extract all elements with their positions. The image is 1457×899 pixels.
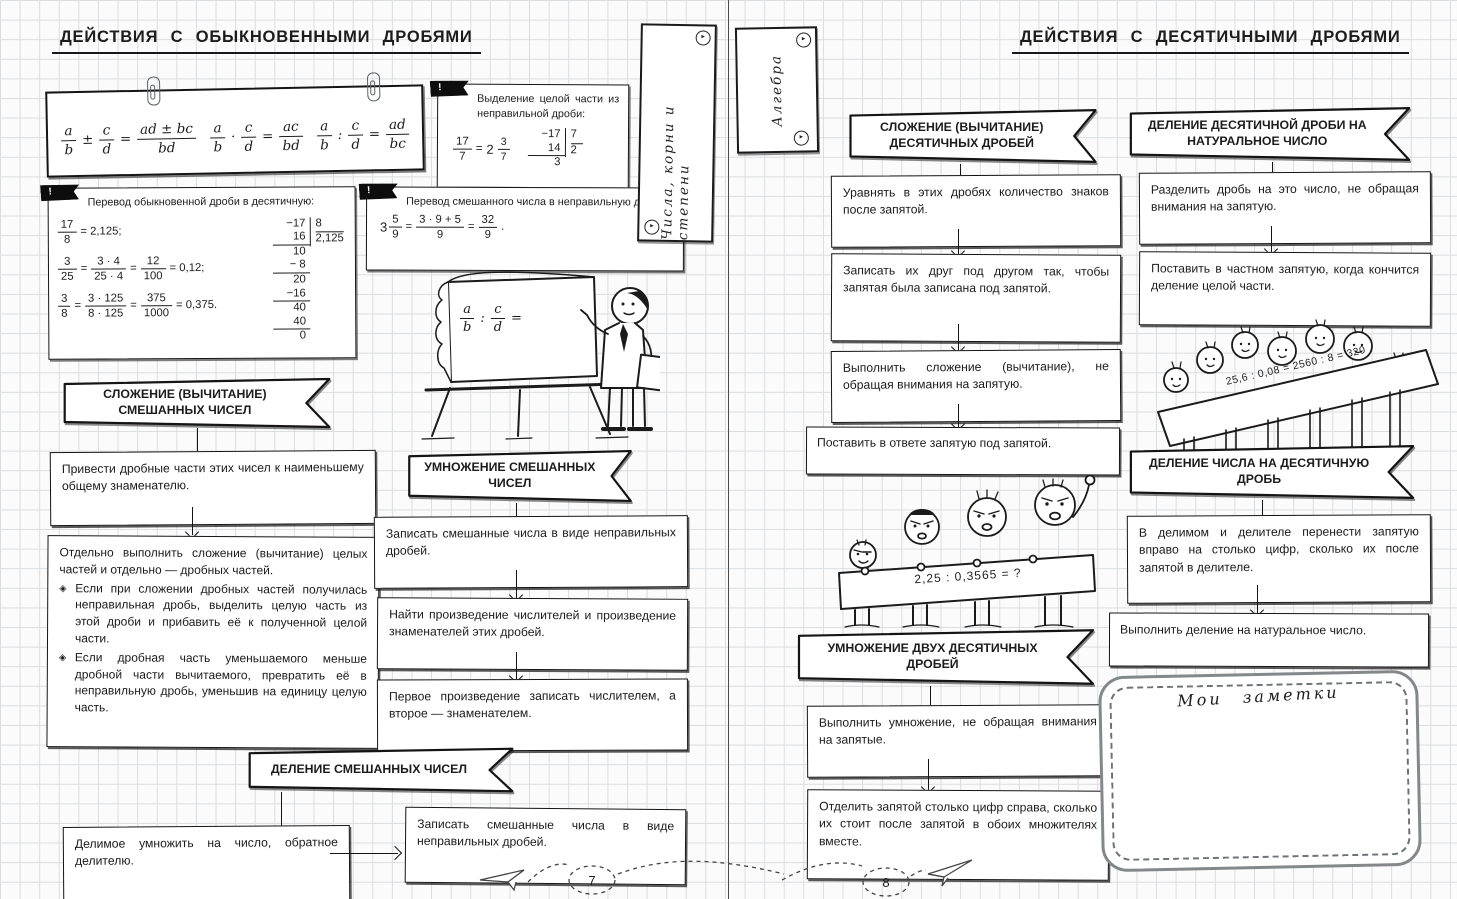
tab-algebra[interactable]: Алгебра ▸ ▸ [735,26,819,153]
dec-example-3: 38 = 3 · 1258 · 125 = 3751000 = 0,375. [58,291,217,319]
step-text: Привести дробные части этих чисел к наим… [62,460,364,493]
step-box: Первое произведение записать числителем,… [377,678,688,751]
extract-long-division: −17 14 3 7 2 [527,128,583,170]
note-flag-icon: ! [40,182,80,202]
fraction-to-decimal-box: ! Перевод обыкновенной дроби в десятичну… [48,186,357,360]
improper-box-title: Перевод смешанного числа в неправильную … [406,195,674,210]
tab-label: Числа, корни и степени [659,26,695,241]
dec-long-division: −17 16 10 − 8 20 −16 40 40 0 8 2,125 [272,217,344,344]
step-text: Делимое умножить на число, обратное дели… [75,835,338,868]
connector-line [1272,162,1273,172]
diamond-bullet-icon: ◈ [59,649,75,716]
paper-plane-icon [928,860,972,886]
step-text: Записать их друг под другом так, чтобы з… [843,263,1109,295]
page-number-right: 8 [868,870,904,896]
formula-multiply: ab · cd = acbd [210,118,303,155]
tab-label: Алгебра [768,54,785,127]
notebook-spread: ДЕЙСТВИЯ С ОБЫКНОВЕННЫМИ ДРОБЯМИ ab ± cd… [0,0,1457,899]
step-box: Записать их друг под другом так, чтобы з… [831,253,1121,343]
section-flag-division-mixed: ДЕЛЕНИЕ СМЕШАННЫХ ЧИСЕЛ [247,747,515,793]
section-flag-divide-by-decimal: ДЕЛЕНИЕ ЧИСЛА НА ДЕСЯТИЧНУЮ ДРОБЬ [1128,444,1416,500]
flow-arrow-down [958,324,959,350]
flow-arrow-down [958,404,959,427]
step-box: Выполнить умножение, не обращая внимания… [807,704,1109,778]
step-box: Записать смешанные числа в виде неправил… [374,515,688,589]
step-text: Найти произведение числителей и произвед… [389,607,676,639]
flow-arrow-right [330,853,398,854]
dec-example-2: 325 = 3 · 425 · 4 = 12100 = 0,12; [58,254,217,282]
flow-arrow-down [516,570,517,598]
improper-example: 3 59 = 3 · 9 + 59 = 329 . [380,213,504,240]
page-trail-left [466,852,796,898]
my-notes-box[interactable]: Мои заметки [1098,670,1422,873]
dec-box-title: Перевод обыкновенной дроби в десятичную: [88,194,346,210]
tab-numbers-roots-powers[interactable]: Числа, корни и степени ▸ ▸ [637,23,717,242]
step-box: Найти произведение числителей и произвед… [377,597,688,671]
step-text: Поставить в частном запятую, когда кончи… [1151,261,1419,293]
flow-arrow-down [1257,585,1258,613]
extract-example: 177 = 2 37 [453,128,510,170]
step-box: Разделить дробь на это число, не обращая… [1139,171,1431,245]
step-text: Выполнить умножение, не обращая внимания… [819,714,1097,747]
connector-line [930,686,931,705]
step-text: Записать смешанные числа в виде неправил… [417,817,674,849]
section-flag-multiply-decimals: УМНОЖЕНИЕ ДВУХ ДЕСЯТИЧНЫХ ДРОБЕЙ [796,628,1096,686]
step-text: Записать смешанные числа в виде неправил… [386,525,676,558]
step-box: В делимом и делителе перенести запятую в… [1127,514,1431,604]
section-flag-divide-by-natural: ДЕЛЕНИЕ ДЕСЯТИЧНОЙ ДРОБИ НА НАТУРАЛЬНОЕ … [1128,106,1412,162]
step-box: Привести дробные части этих чисел к наим… [50,450,377,526]
formula-add-sub: ab ± cd = ad ± bcbd [61,120,196,158]
flag-label: УМНОЖЕНИЕ СМЕШАННЫХ ЧИСЕЛ [407,449,633,503]
board-formula: ab : cd = [460,302,524,335]
step-text: Отделить запятой столько цифр справа, ск… [819,799,1097,848]
flow-arrow-down [516,652,517,679]
step-text: Выполнить деление на натуральное число. [1120,622,1366,637]
right-page-title: ДЕЙСТВИЯ С ДЕСЯТИЧНЫМИ ДРОБЯМИ [1012,28,1409,54]
extract-box-title: Выделение целой части из неправильной др… [477,92,619,122]
step-box: Выполнить сложение (вычитание), не обращ… [831,349,1121,423]
flow-arrow-down [958,229,959,254]
flag-label: УМНОЖЕНИЕ ДВУХ ДЕСЯТИЧНЫХ ДРОБЕЙ [796,628,1096,686]
spine-divider [728,0,729,899]
protest-kids-illustration: 2,25 : 0,3565 = ? [825,453,1115,628]
flag-label: ДЕЛЕНИЕ ЧИСЛА НА ДЕСЯТИЧНУЮ ДРОБЬ [1128,444,1416,500]
paper-plane-icon [480,870,524,890]
flow-arrow-down [192,507,193,535]
kids-banner-illustration: 25,6 : 0,08 = 2560 : 8 = 320 [1150,308,1450,450]
bullet-text: Если при сложении дробных частей получил… [75,580,367,649]
page-number-left: 7 [574,868,610,894]
bullet-item: ◈ Если дробная часть уменьшаемого меньше… [59,649,367,718]
flag-label: ДЕЛЕНИЕ ДЕСЯТИЧНОЙ ДРОБИ НА НАТУРАЛЬНОЕ … [1128,106,1412,162]
step-box: Уравнять в этих дробях количество знаков… [831,174,1121,248]
flow-arrow-down [1271,226,1272,252]
paperclip-icon [147,76,161,105]
section-flag-addsub-decimals: СЛОЖЕНИЕ (ВЫЧИТАНИЕ) ДЕСЯТИЧНЫХ ДРОБЕЙ [848,108,1098,164]
flow-arrow-down [928,759,929,790]
fraction-formulas-card: ab ± cd = ad ± bcbd ab · cd = acbd ab : … [45,84,425,177]
step-text: Выполнить сложение (вычитание), не обращ… [843,359,1109,392]
step-box: Делимое умножить на число, обратное дели… [63,825,351,899]
section-flag-multiplication-mixed: УМНОЖЕНИЕ СМЕШАННЫХ ЧИСЕЛ [407,449,633,503]
connector-line [197,428,198,451]
teacher-illustration: ab : cd = [392,266,660,443]
extract-whole-part-box: ! Выделение целой части из неправильной … [437,83,630,188]
left-page-title: ДЕЙСТВИЯ С ОБЫКНОВЕННЫМИ ДРОБЯМИ [52,28,481,54]
connector-line [1262,500,1263,515]
step-text: Отдельно выполнить сложение (вычитание) … [59,544,367,579]
step-text: Поставить в ответе запятую под запятой. [817,435,1051,450]
connector-line [960,164,961,175]
note-flag-icon: ! [359,181,399,201]
flag-label: СЛОЖЕНИЕ (ВЫЧИТАНИЕ) ДЕСЯТИЧНЫХ ДРОБЕЙ [848,108,1098,164]
dec-example-1: 178 = 2,125; [58,217,217,245]
bullet-text: Если дробная часть уменьшаемого меньше д… [75,649,367,718]
step-text: В делимом и делителе перенести запятую в… [1139,524,1419,574]
bullet-item: ◈ Если при сложении дробных частей получ… [59,580,367,649]
flag-label: СЛОЖЕНИЕ (ВЫЧИТАНИЕ) СМЕШАННЫХ ЧИСЕЛ [62,377,332,429]
connector-line [516,503,517,516]
step-box: Выполнить деление на натуральное число. [1109,612,1429,667]
section-flag-addition-mixed: СЛОЖЕНИЕ (ВЫЧИТАНИЕ) СМЕШАННЫХ ЧИСЕЛ [62,377,332,429]
connector-line [281,792,282,826]
diamond-bullet-icon: ◈ [59,580,75,647]
paperclip-icon [367,72,381,101]
step-box: Отдельно выполнить сложение (вычитание) … [46,535,379,749]
formula-divide: ab : cd = adbc [317,116,410,153]
note-flag-icon: ! [430,78,470,97]
step-text: Уравнять в этих дробях количество знаков… [843,184,1109,217]
step-text: Первое произведение записать числителем,… [389,688,676,720]
flag-label: ДЕЛЕНИЕ СМЕШАННЫХ ЧИСЕЛ [247,747,515,793]
step-text: Разделить дробь на это число, не обращая… [1151,181,1419,214]
